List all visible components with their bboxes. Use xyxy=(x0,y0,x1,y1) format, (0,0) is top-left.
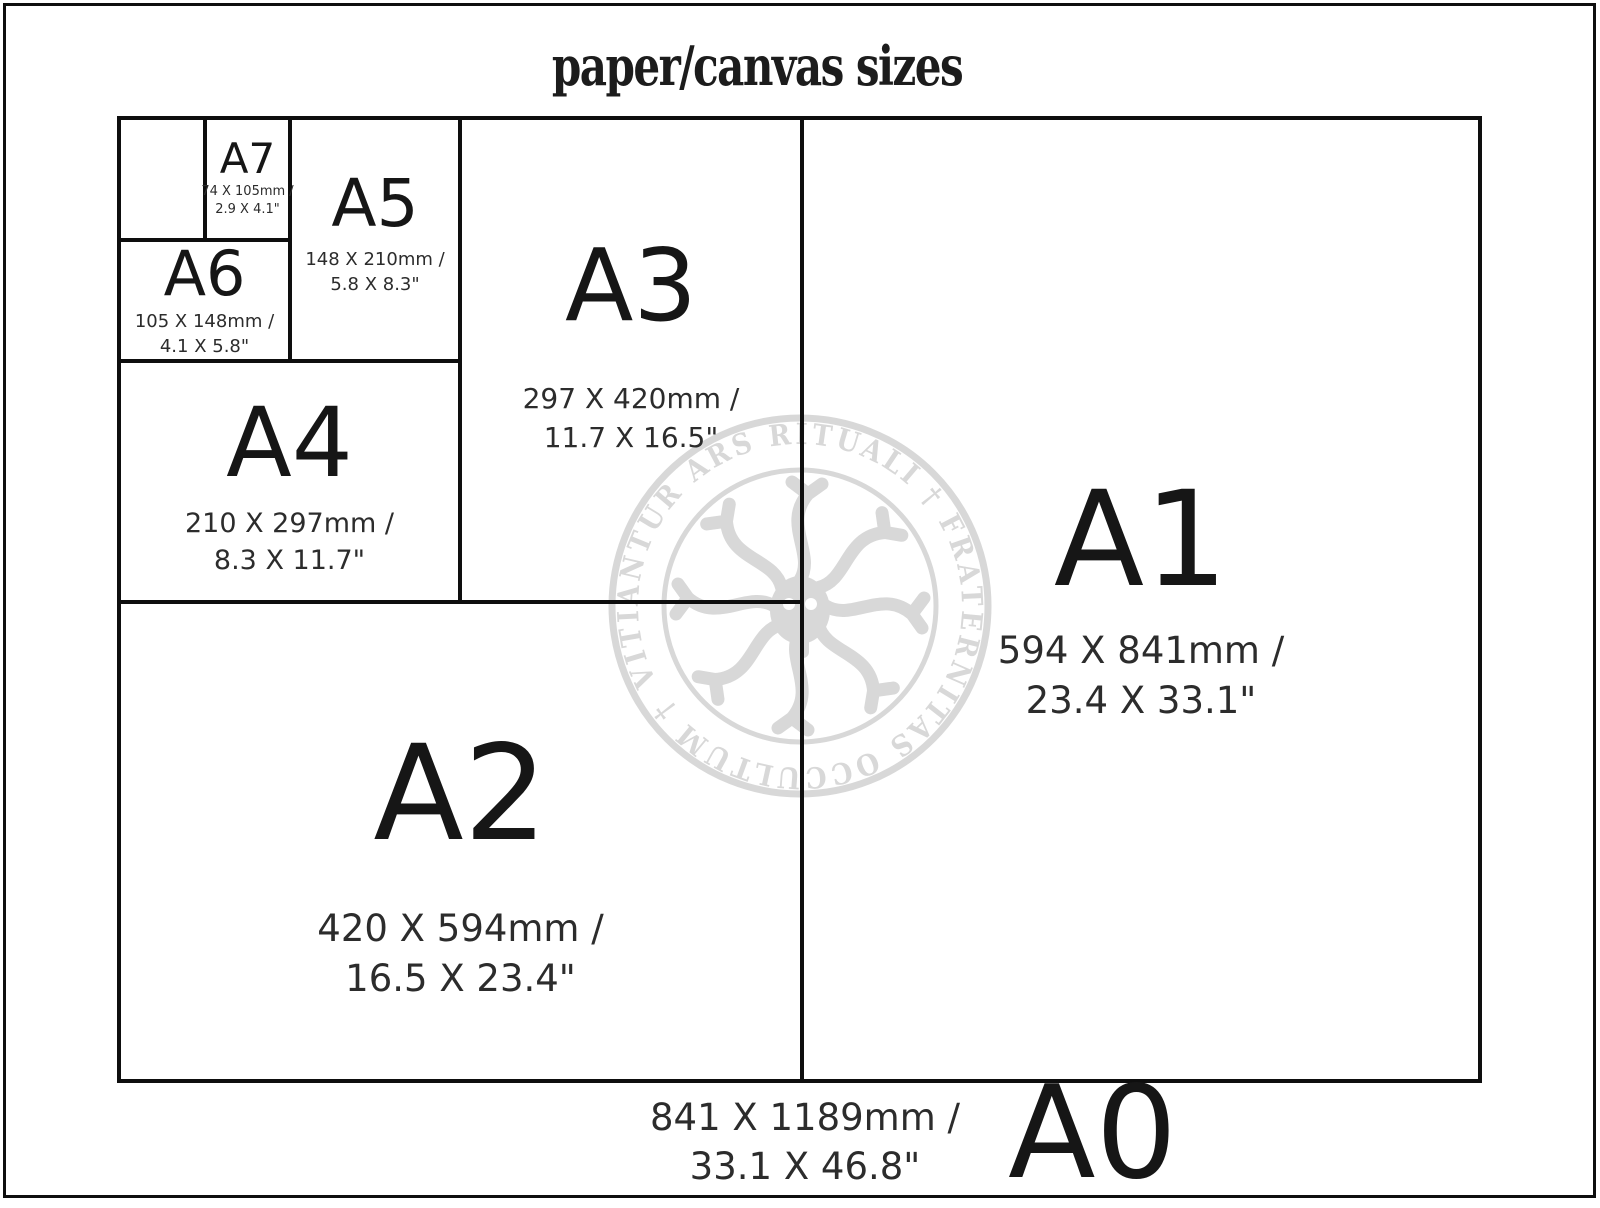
size-mm-a7: 74 X 105mm / xyxy=(201,183,293,202)
size-inches-a3: 11.7 X 16.5" xyxy=(523,418,740,457)
paper-sizes-diagram: paper/canvas sizes VITIANTUR ARS RITUALI… xyxy=(0,0,1600,1202)
size-label-a6: A6 xyxy=(164,242,246,305)
page-title: paper/canvas sizes xyxy=(552,34,962,98)
size-label-a0: A0 xyxy=(1008,1070,1177,1198)
size-dimensions-a1: 594 X 841mm / 23.4 X 33.1" xyxy=(998,626,1284,726)
size-mm-a5: 148 X 210mm / xyxy=(305,247,444,272)
size-box-a4: A4 210 X 297mm / 8.3 X 11.7" xyxy=(121,369,458,606)
size-box-a2: A2 420 X 594mm / 16.5 X 23.4" xyxy=(121,628,800,1103)
size-inches-a5: 5.8 X 8.3" xyxy=(305,272,444,297)
size-label-a7: A7 xyxy=(220,138,275,181)
size-mm-a6: 105 X 148mm / xyxy=(135,309,274,334)
size-box-a1: A1 594 X 841mm / 23.4 X 33.1" xyxy=(804,120,1478,1079)
size-dimensions-a5: 148 X 210mm / 5.8 X 8.3" xyxy=(305,247,444,297)
size-label-a3: A3 xyxy=(565,235,697,337)
size-dimensions-a3: 297 X 420mm / 11.7 X 16.5" xyxy=(523,379,740,457)
size-label-a4: A4 xyxy=(226,395,353,493)
size-mm-a3: 297 X 420mm / xyxy=(523,379,740,418)
a0-sheet-outline: A7 74 X 105mm / 2.9 X 4.1" A6 105 X 148m… xyxy=(117,116,1482,1083)
size-inches-a6: 4.1 X 5.8" xyxy=(135,334,274,359)
size-label-a2: A2 xyxy=(373,727,547,862)
size-dimensions-a6: 105 X 148mm / 4.1 X 5.8" xyxy=(135,309,274,359)
size-inches-a2: 16.5 X 23.4" xyxy=(317,954,603,1004)
size-label-a5: A5 xyxy=(331,170,418,237)
size-box-a7: A7 74 X 105mm / 2.9 X 4.1" xyxy=(207,120,288,238)
size-mm-a2: 420 X 594mm / xyxy=(317,904,603,954)
size-dimensions-a7: 74 X 105mm / 2.9 X 4.1" xyxy=(201,183,293,221)
size-box-a3: A3 297 X 420mm / 11.7 X 16.5" xyxy=(462,106,800,586)
size-box-a6: A6 105 X 148mm / 4.1 X 5.8" xyxy=(121,242,288,359)
size-inches-a4: 8.3 X 11.7" xyxy=(185,542,394,580)
size-label-a1: A1 xyxy=(1054,473,1228,608)
size-mm-a4: 210 X 297mm / xyxy=(185,505,394,543)
size-inches-a1: 23.4 X 33.1" xyxy=(998,676,1284,726)
size-mm-a1: 594 X 841mm / xyxy=(998,626,1284,676)
size-dimensions-a2: 420 X 594mm / 16.5 X 23.4" xyxy=(317,904,603,1004)
size-box-a5: A5 148 X 210mm / 5.8 X 8.3" xyxy=(292,112,458,355)
size-inches-a7: 2.9 X 4.1" xyxy=(201,201,293,220)
size-dimensions-a4: 210 X 297mm / 8.3 X 11.7" xyxy=(185,505,394,581)
